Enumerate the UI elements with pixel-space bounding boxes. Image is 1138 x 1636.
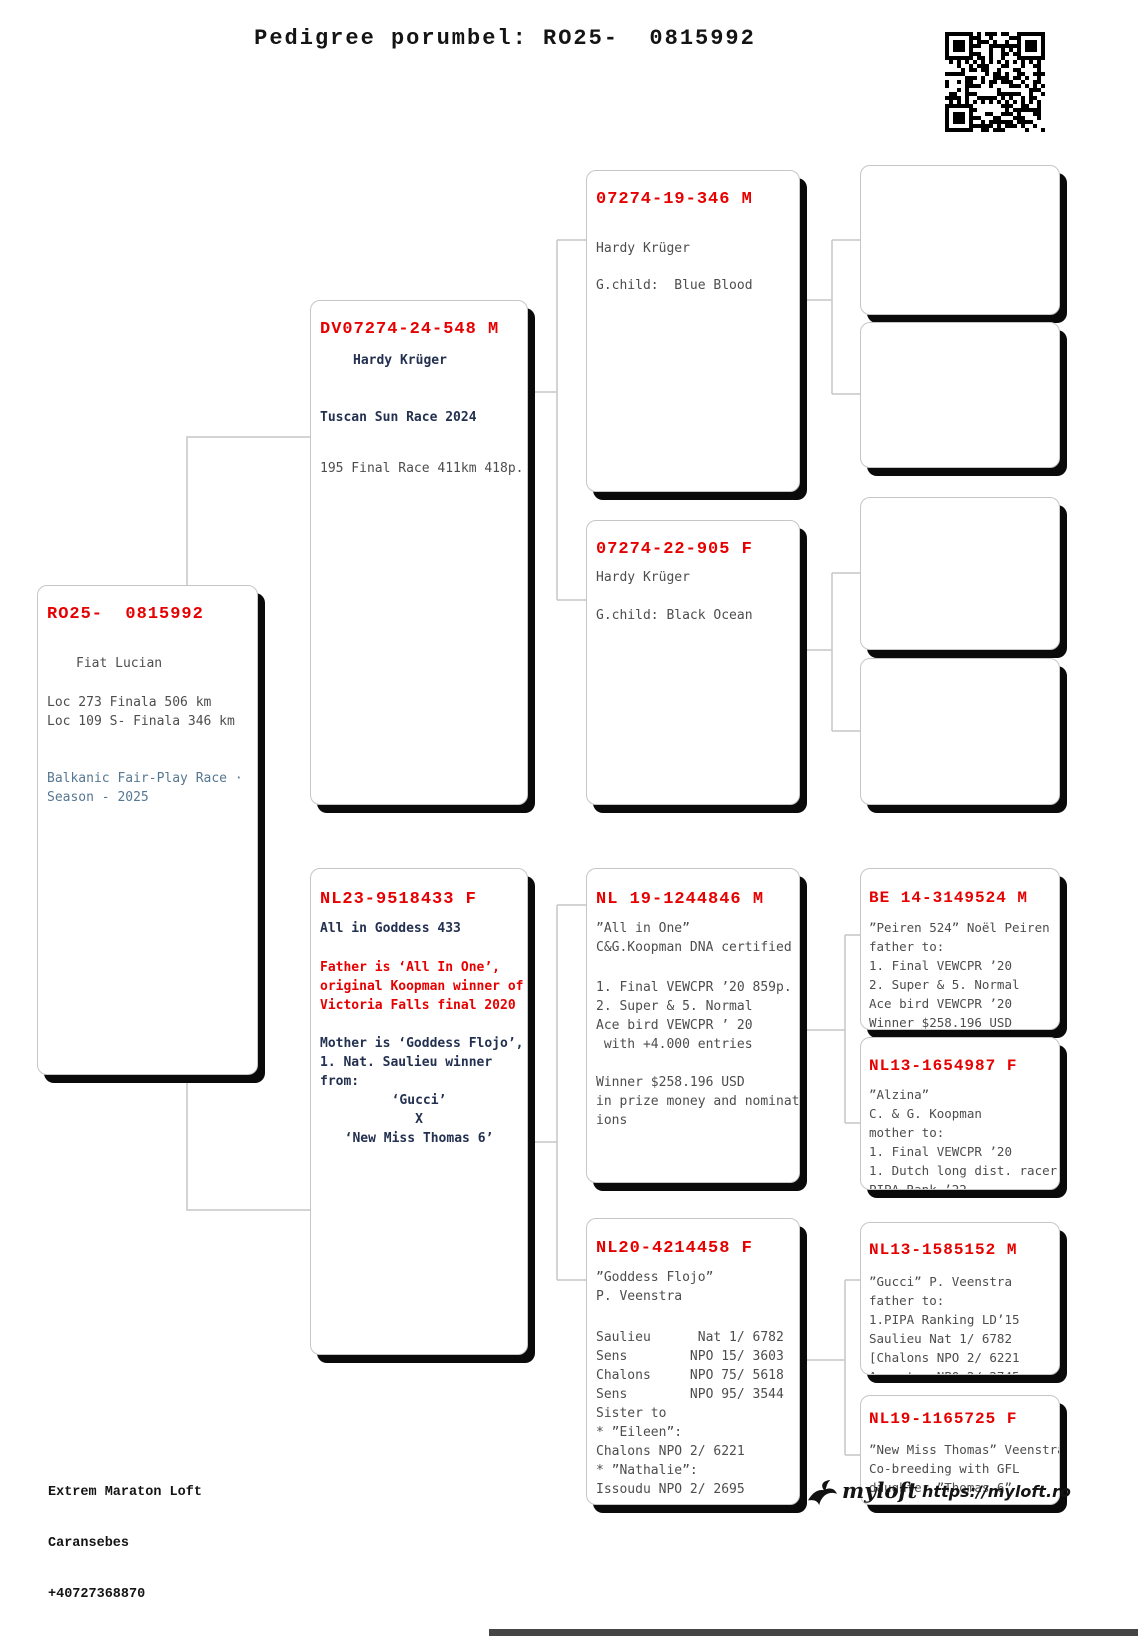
ring-id: NL13-1654987 F [869, 1055, 1051, 1077]
result-line: 1. Final VEWCPR ’20 859p. [596, 978, 790, 997]
note-line: Winner $258.196 USD [596, 1073, 790, 1092]
note-line: G.child: Blue Blood [596, 276, 790, 295]
result-line: Sens NPO 95/ 3544 [596, 1385, 790, 1404]
result-line: 1. Final VEWCPR ’20 [869, 1142, 1051, 1161]
result-line: Loc 273 Finala 506 km [47, 693, 248, 712]
box-dam-dam: NL20-4214458 F ”Goddess Flojo” P. Veenst… [586, 1218, 800, 1505]
ring-id: BE 14-3149524 M [869, 887, 1051, 909]
ancestor-box-empty-3 [860, 497, 1060, 650]
ring-id: RO25- 0815992 [47, 604, 248, 626]
box-sire-dam: 07274-22-905 F Hardy Krüger G.child: Bla… [586, 520, 800, 805]
ancestor-box-empty-2 [860, 322, 1060, 468]
race-name: Tuscan Sun Race 2024 [320, 408, 518, 427]
ring-id: 07274-22-905 F [596, 539, 790, 561]
result-line: with +4.000 entries [596, 1035, 790, 1054]
result-line: Ace bird VEWCPR ’20 [869, 994, 1051, 1013]
pigeon-name: ”New Miss Thomas” Veenstra [869, 1440, 1051, 1459]
ring-id: NL13-1585152 M [869, 1239, 1051, 1261]
note-line: Sister to [596, 1404, 790, 1423]
qr-code [945, 32, 1045, 132]
pedigree-page: Pedigree porumbel: RO25- 0815992 RO25- 0… [0, 0, 1138, 1636]
ancestor-box-empty-4 [860, 658, 1060, 805]
pigeon-name: ”Alzina” [869, 1085, 1051, 1104]
box-sire-sire: 07274-19-346 M Hardy Krüger G.child: Blu… [586, 170, 800, 492]
result-line: Saulieu Nat 1/ 6782 [869, 1329, 1051, 1348]
ring-id: DV07274-24-548 M [320, 319, 518, 341]
cross-line: ‘Gucci’ [320, 1091, 518, 1110]
result-line: 1.PIPA Ranking LD’15 [869, 1310, 1051, 1329]
result-line: Issoudu NPO 2/ 2695 [596, 1480, 790, 1499]
result-line: Argenton NPO 2/ 2745 [869, 1367, 1051, 1375]
pigeon-name: Hardy Krüger [353, 351, 518, 370]
race-series-line: Balkanic Fair-Play Race · [47, 769, 248, 788]
note-line: mother to: [869, 1123, 1051, 1142]
loft-contact-block: Extrem Maraton Loft Caransebes +40727368… [48, 1450, 210, 1636]
note-line: in prize money and nominat [596, 1092, 790, 1111]
result-line: PIPA Rank.’22 [869, 1180, 1051, 1190]
result-line: Ace bird VEWCPR ’ 20 [596, 1016, 790, 1035]
result-line: Saulieu Nat 1/ 6782 [596, 1328, 790, 1347]
pigeon-name: ”Goddess Flojo” [596, 1268, 790, 1287]
race-result: 195 Final Race 411km 418p. [320, 459, 518, 478]
note-line: Mother is ‘Goddess Flojo’, [320, 1034, 518, 1053]
ring-id: NL23-9518433 F [320, 889, 518, 911]
page-title: Pedigree porumbel: RO25- 0815992 [0, 26, 1010, 51]
result-line: Chalons NPO 75/ 5618 [596, 1366, 790, 1385]
note-line: father to: [869, 937, 1051, 956]
result-line: Winner $258.196 USD [869, 1013, 1051, 1030]
note-line: from: [320, 1072, 518, 1091]
result-line: Chalons NPO 2/ 6221 [596, 1442, 790, 1461]
pigeon-name: Hardy Krüger [596, 239, 790, 258]
note-line: Victoria Falls final 2020 [320, 996, 518, 1015]
note-line: 1. Nat. Saulieu winner [320, 1053, 518, 1072]
bird-logo-icon [806, 1478, 838, 1510]
note-line: father to: [869, 1291, 1051, 1310]
race-series-line: Season - 2025 [47, 788, 248, 807]
cross-line: ‘New Miss Thomas 6’ [320, 1129, 518, 1148]
breeder-name: C. & G. Koopman [869, 1104, 1051, 1123]
box-dam-sire-dam: NL13-1654987 F ”Alzina” C. & G. Koopman … [860, 1037, 1060, 1190]
note-line: G.child: Black Ocean [596, 606, 790, 625]
myloft-url-link[interactable]: https://myloft.ro [922, 1482, 1071, 1501]
box-dam-dam-sire: NL13-1585152 M ”Gucci” P. Veenstra fathe… [860, 1222, 1060, 1375]
pigeon-name: ”Gucci” P. Veenstra [869, 1272, 1051, 1291]
sire-box: DV07274-24-548 M Hardy Krüger Tuscan Sun… [310, 300, 528, 805]
note-line: * ”Eileen”: [596, 1423, 790, 1442]
loft-name: Extrem Maraton Loft [48, 1484, 210, 1501]
brand-block: myloft https://myloft.ro [806, 1476, 1106, 1512]
pigeon-name: Hardy Krüger [596, 568, 790, 587]
result-line: 2. Super & 5. Normal [869, 975, 1051, 994]
ring-id: NL20-4214458 F [596, 1238, 790, 1260]
ring-id: NL19-1165725 F [869, 1408, 1051, 1430]
note-line: * ”Nathalie”: [596, 1461, 790, 1480]
result-line: Loc 109 S- Finala 346 km [47, 712, 248, 731]
ring-id: 07274-19-346 M [596, 189, 790, 211]
loft-city: Caransebes [48, 1535, 210, 1552]
note-line: C&G.Koopman DNA certified [596, 938, 790, 957]
box-dam-sire: NL 19-1244846 M ”All in One” C&G.Koopman… [586, 868, 800, 1183]
pigeon-name: All in Goddess 433 [320, 919, 518, 938]
box-dam-sire-sire: BE 14-3149524 M ”Peiren 524” Noël Peiren… [860, 868, 1060, 1030]
pigeon-name: ”All in One” [596, 919, 790, 938]
myloft-logo-text: myloft [842, 1478, 917, 1503]
owner-name: Fiat Lucian [76, 654, 248, 673]
result-line: Sens NPO 15/ 3603 [596, 1347, 790, 1366]
page-edge-strip [489, 1629, 1138, 1636]
result-line: [Chalons NPO 2/ 6221 [869, 1348, 1051, 1367]
breeder-name: P. Veenstra [596, 1287, 790, 1306]
result-line: 1. Dutch long dist. racer [869, 1161, 1051, 1180]
note-line: original Koopman winner of [320, 977, 518, 996]
dam-box: NL23-9518433 F All in Goddess 433 Father… [310, 868, 528, 1355]
result-line: 2. Super & 5. Normal [596, 997, 790, 1016]
ring-id: NL 19-1244846 M [596, 889, 790, 911]
pigeon-name: ”Peiren 524” Noël Peiren [869, 918, 1051, 937]
subject-box: RO25- 0815992 Fiat Lucian Loc 273 Finala… [37, 585, 258, 1075]
loft-phone: +40727368870 [48, 1586, 210, 1603]
cross-line: X [320, 1110, 518, 1129]
ancestor-box-empty-1 [860, 165, 1060, 315]
note-line: ions [596, 1111, 790, 1130]
result-line: 1. Final VEWCPR ’20 [869, 956, 1051, 975]
note-line: Father is ‘All In One’, [320, 958, 518, 977]
